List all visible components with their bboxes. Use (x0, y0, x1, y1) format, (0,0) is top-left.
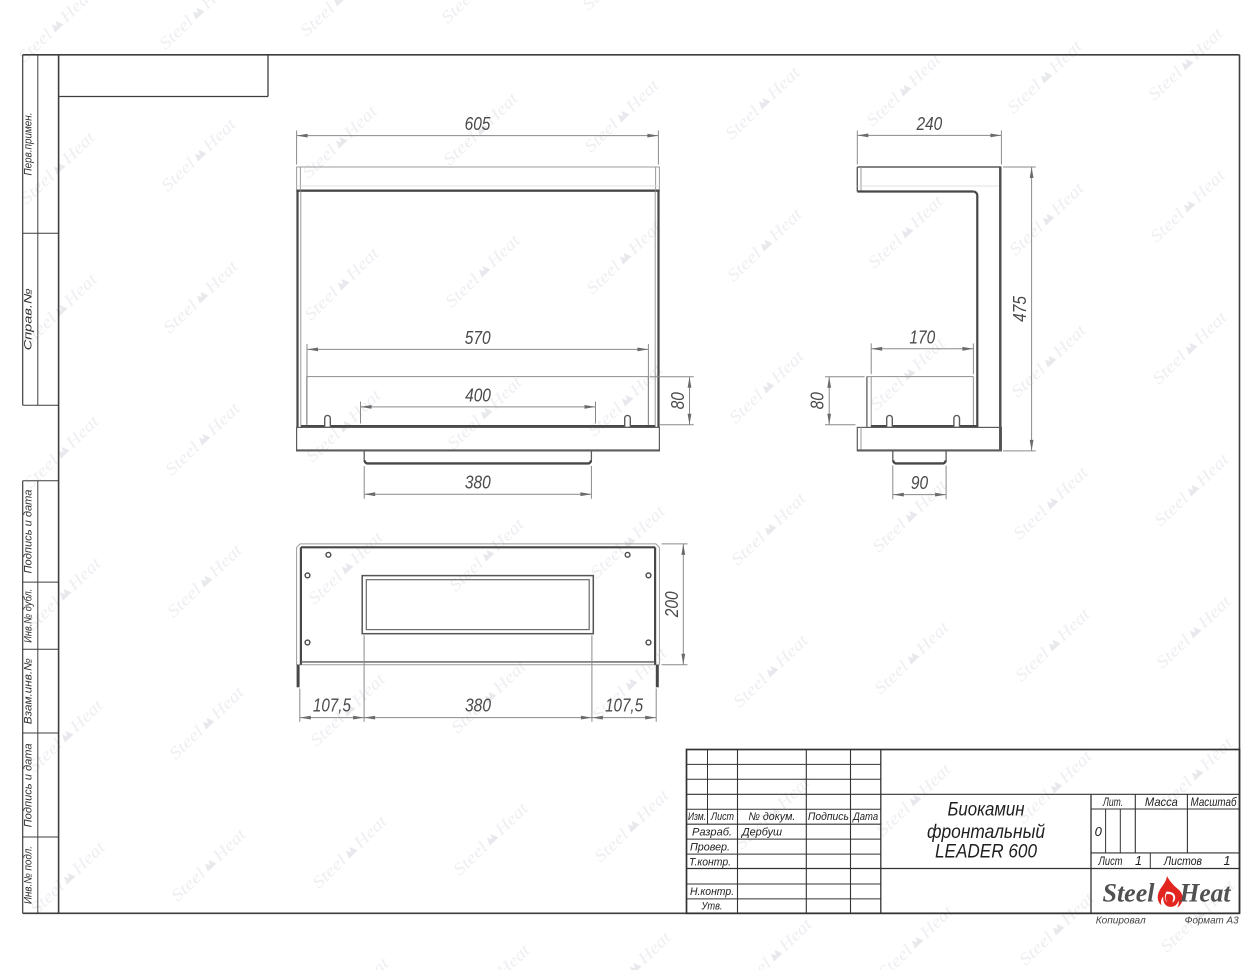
svg-text:Листов: Листов (1163, 854, 1202, 868)
svg-text:400: 400 (465, 385, 491, 405)
svg-text:Разраб.: Разраб. (692, 827, 732, 839)
svg-text:Справ.№: Справ.№ (23, 288, 35, 350)
svg-text:107,5: 107,5 (313, 696, 352, 716)
svg-text:Подпись и дата: Подпись и дата (23, 743, 35, 827)
svg-text:Дата: Дата (851, 811, 878, 823)
svg-text:Биокамин: Биокамин (948, 799, 1025, 821)
svg-text:570: 570 (465, 328, 491, 348)
svg-text:Лист: Лист (1098, 854, 1123, 868)
svg-text:Дербуш: Дербуш (740, 827, 782, 839)
svg-text:170: 170 (909, 327, 935, 347)
svg-text:Перв.примен.: Перв.примен. (23, 113, 35, 176)
svg-text:Лист: Лист (710, 811, 734, 823)
svg-text:80: 80 (668, 392, 688, 409)
svg-text:Копировал: Копировал (1096, 915, 1146, 927)
svg-text:Подпись и дата: Подпись и дата (23, 490, 35, 574)
svg-text:Н.контр.: Н.контр. (690, 886, 734, 898)
svg-text:Изм.: Изм. (688, 811, 706, 823)
svg-text:107,5: 107,5 (605, 696, 644, 716)
svg-text:Взам.инв.№: Взам.инв.№ (23, 658, 35, 724)
svg-text:380: 380 (465, 473, 491, 493)
svg-text:Инв.№ подл.: Инв.№ подл. (23, 846, 35, 904)
svg-text:Heat: Heat (1179, 879, 1232, 908)
svg-text:1: 1 (1224, 854, 1231, 868)
svg-text:380: 380 (465, 696, 491, 716)
svg-text:LEADER 600: LEADER 600 (935, 841, 1037, 863)
svg-text:Т.контр.: Т.контр. (689, 856, 731, 868)
svg-text:Лит.: Лит. (1102, 795, 1123, 809)
svg-text:0: 0 (1095, 824, 1103, 839)
svg-text:Масса: Масса (1145, 795, 1178, 809)
svg-text:Масштаб: Масштаб (1191, 795, 1238, 809)
svg-text:Формат А3: Формат А3 (1185, 915, 1239, 927)
svg-text:605: 605 (465, 114, 492, 134)
svg-text:Провер.: Провер. (690, 841, 730, 853)
svg-text:200: 200 (662, 591, 682, 618)
svg-text:Подпись: Подпись (808, 811, 849, 823)
svg-text:90: 90 (911, 473, 928, 493)
svg-text:240: 240 (916, 114, 943, 134)
svg-text:80: 80 (808, 392, 828, 409)
svg-text:475: 475 (1010, 295, 1030, 322)
svg-text:Утв.: Утв. (701, 901, 723, 913)
svg-text:1: 1 (1135, 854, 1142, 868)
svg-text:Инв.№ дубл.: Инв.№ дубл. (23, 589, 35, 643)
svg-text:№ докум.: № докум. (748, 811, 795, 823)
svg-text:Steel: Steel (1103, 879, 1156, 908)
